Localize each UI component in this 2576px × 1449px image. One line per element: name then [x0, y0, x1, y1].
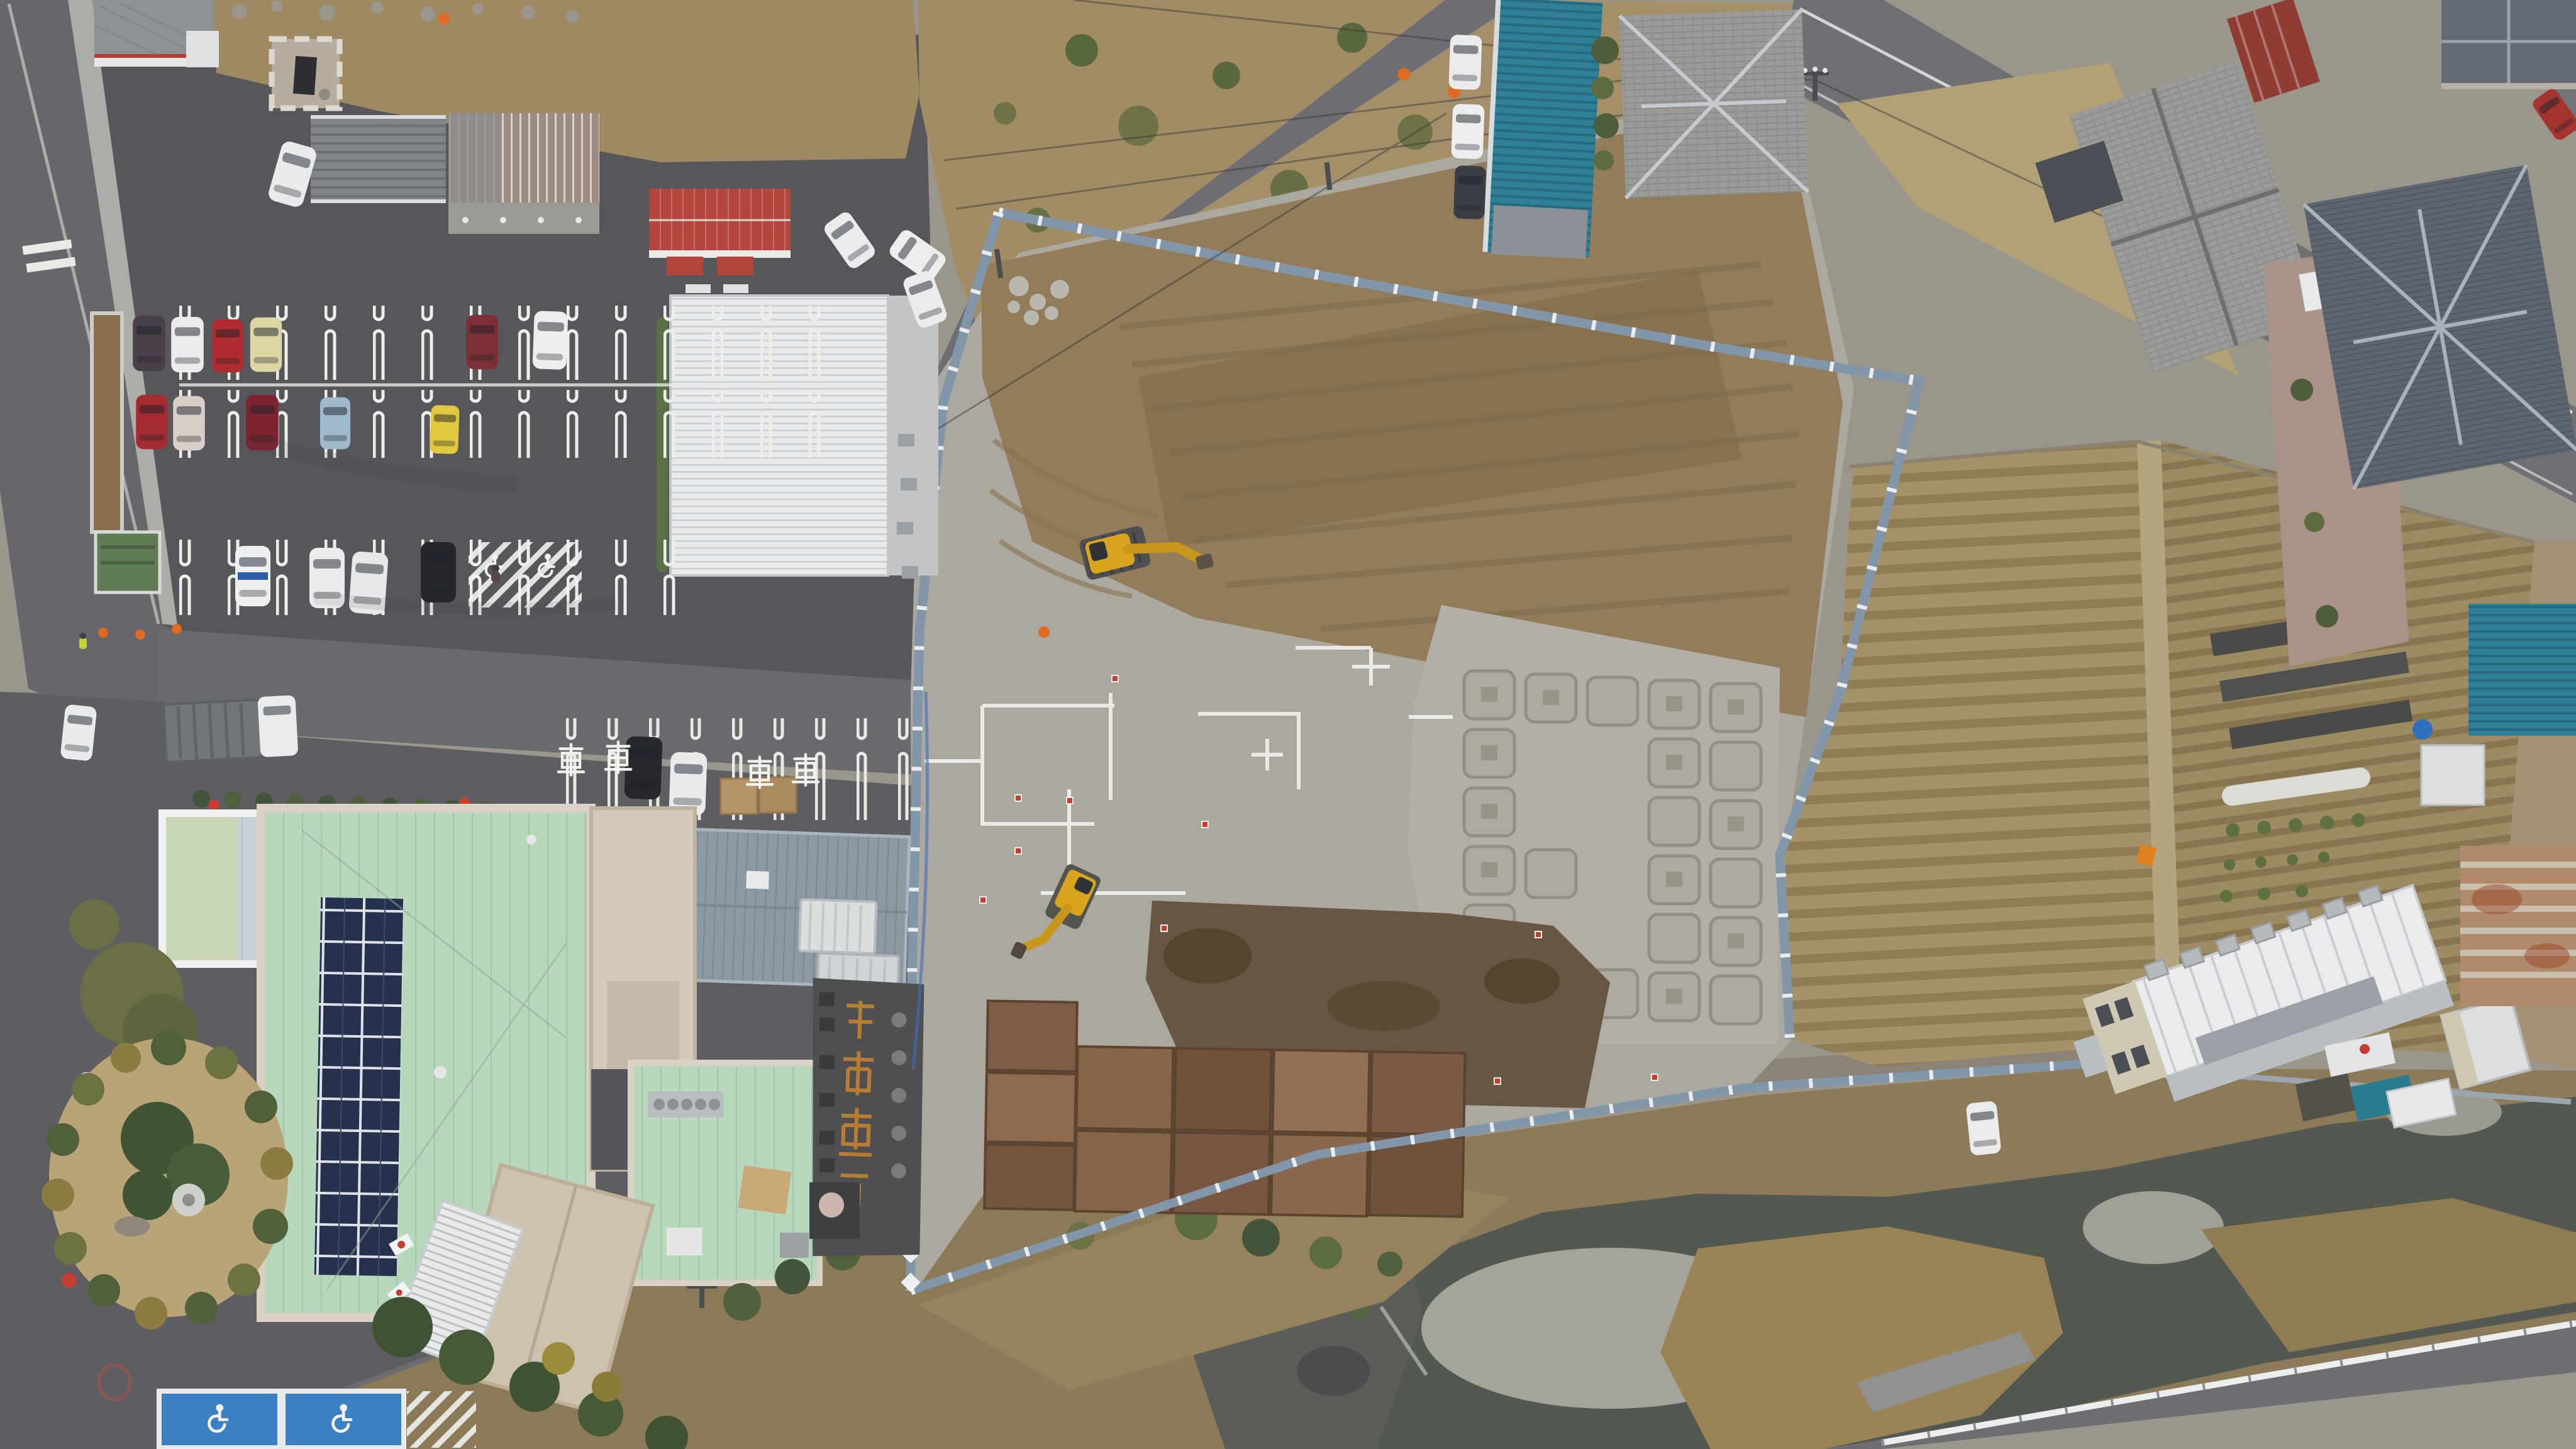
accessible-hatch-zone — [469, 542, 582, 608]
dark-shed — [809, 1182, 860, 1239]
monument-enclosure — [272, 39, 340, 108]
gray-tile-house-center — [1619, 9, 1808, 198]
blue-barrel — [2412, 719, 2433, 740]
teal-roof-building — [1482, 0, 1602, 259]
dark-rocks — [1297, 1346, 1370, 1396]
truck-on-road — [164, 695, 299, 762]
solar-panel-array — [314, 897, 404, 1276]
green-shelter — [96, 532, 160, 592]
aerial-photo: 車 車 車 車 — [0, 0, 2576, 1449]
aerial-photo-stage: 車 車 車 車 — [0, 0, 2576, 1449]
plywood-sheet — [738, 1165, 792, 1214]
top-corner-house — [2441, 0, 2576, 89]
carport — [311, 115, 446, 203]
green-roof-annex — [631, 1063, 819, 1283]
worker-hivis — [79, 633, 87, 649]
white-van-exit — [60, 704, 97, 761]
skylight — [746, 871, 769, 889]
patrol-car — [235, 546, 270, 606]
gray-office-building — [94, 0, 219, 67]
soil-mound — [1484, 958, 1560, 1004]
rooftop-box — [780, 1233, 809, 1258]
white-car-riverside — [1966, 1101, 2002, 1156]
white-shed — [2421, 745, 2484, 805]
teal-warehouse — [2468, 604, 2576, 736]
pedestrian — [491, 565, 500, 582]
rooftop-box — [667, 1228, 702, 1255]
rusty-shed — [2460, 846, 2576, 1006]
planter-bed — [92, 313, 122, 532]
orange-cone — [438, 13, 450, 25]
soil-mound — [1163, 928, 1252, 984]
red-marker — [62, 1273, 77, 1288]
gravel-bar-small — [2083, 1191, 2224, 1264]
hatch-zone — [407, 1391, 476, 1448]
pink-tank — [819, 1192, 844, 1218]
soil-mound — [1327, 981, 1440, 1031]
accessible-parking-stalls — [159, 1391, 476, 1448]
brown-roof-building — [448, 113, 599, 234]
monument-slab — [293, 56, 317, 95]
